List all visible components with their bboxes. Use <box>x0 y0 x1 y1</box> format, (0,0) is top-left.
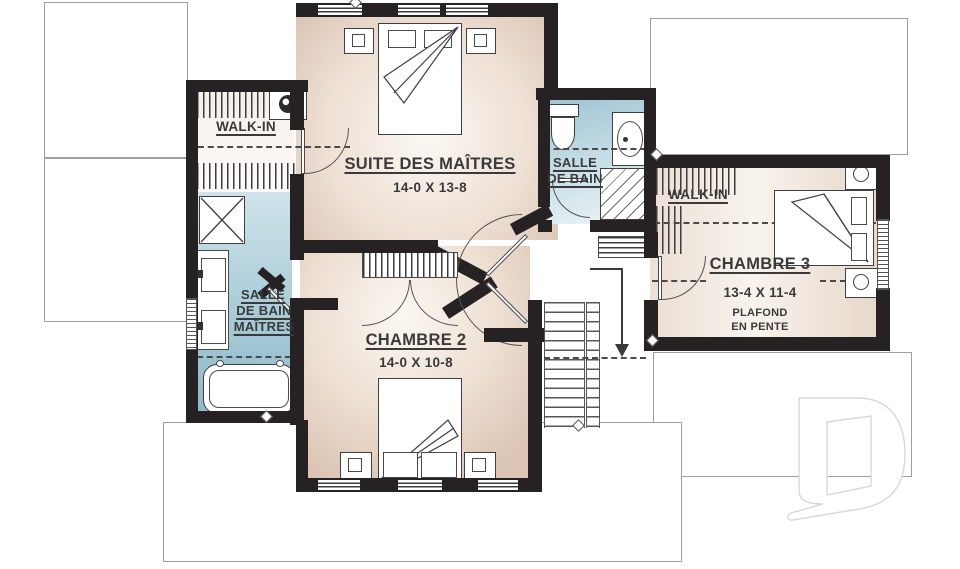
window <box>318 480 360 490</box>
window <box>877 219 889 290</box>
down-arrow-lead <box>590 268 622 270</box>
down-arrow-shaft <box>621 268 623 346</box>
roof-outline-left-bottom <box>44 158 188 322</box>
toilet-tank <box>547 104 579 117</box>
room-label-bathroom-line1: SALLE <box>545 156 605 170</box>
room-note-bedroom3-line2: EN PENTE <box>716 322 804 334</box>
shower-x-lines <box>199 196 245 244</box>
room-dims-master-suite: 14-0 X 13-8 <box>355 181 505 195</box>
room-label-master-walkin: WALK-IN <box>198 120 294 134</box>
sink-icon <box>201 310 226 344</box>
window <box>398 480 442 490</box>
wall <box>536 88 656 100</box>
window <box>446 5 488 15</box>
toilet-icon <box>551 117 575 150</box>
sloped-ceiling-dashed-line <box>544 148 646 150</box>
sloped-ceiling-dashed-line <box>544 357 646 359</box>
pillow <box>383 452 418 478</box>
lamp-icon <box>352 34 365 47</box>
room-dims-bedroom3: 13-4 X 11-4 <box>706 286 814 300</box>
pillow <box>851 233 867 261</box>
wall <box>528 300 542 492</box>
room-dims-bedroom2: 14-0 X 10-8 <box>364 356 468 370</box>
tub-foot <box>216 360 224 367</box>
window <box>186 298 197 350</box>
pillow <box>851 197 867 225</box>
brand-logo-d <box>783 392 913 522</box>
pillow <box>421 452 457 478</box>
wall <box>186 411 304 423</box>
room-label-bedroom3: CHAMBRE 3 <box>700 256 820 273</box>
stair-stringer <box>584 302 587 428</box>
linen-closet-shelves <box>598 236 646 258</box>
roof-outline-top-right <box>650 18 908 155</box>
wall <box>544 3 558 99</box>
wall <box>590 220 656 232</box>
wall <box>186 80 308 92</box>
wall <box>292 298 338 310</box>
stairs <box>544 302 600 428</box>
room-label-bedroom3-walkin: WALK-IN <box>660 188 736 202</box>
closet-shelves <box>362 252 458 278</box>
wall <box>644 337 890 351</box>
room-label-master-bathroom-line3: MAÎTRES <box>228 320 300 334</box>
lamp-icon <box>348 458 362 472</box>
window <box>478 480 518 490</box>
room-label-master-suite: SUITE DES MAÎTRES <box>330 156 530 173</box>
bed-blanket-fold <box>378 23 462 135</box>
sloped-ceiling-dashed-line <box>197 356 291 358</box>
wall <box>644 155 890 168</box>
sink-icon <box>201 258 226 292</box>
lamp-icon <box>472 458 486 472</box>
room-label-bathroom-line2: DE BAIN <box>538 172 612 186</box>
room-label-master-bathroom-line1: SALLE <box>232 288 294 302</box>
room-label-bedroom2: CHAMBRE 2 <box>358 332 474 349</box>
sink-icon <box>617 121 643 157</box>
lamp-icon <box>853 166 869 182</box>
wall <box>644 232 658 258</box>
drain-icon <box>623 137 628 142</box>
down-arrow-icon <box>615 344 629 357</box>
closet-shelves <box>656 206 684 254</box>
lamp-icon <box>474 34 487 47</box>
wall <box>290 240 438 253</box>
bathtub-inner <box>209 370 289 408</box>
wall <box>876 155 890 221</box>
wall <box>186 80 198 423</box>
wall <box>538 95 550 207</box>
closet-shelves <box>197 163 295 189</box>
wall <box>538 220 552 232</box>
window <box>398 5 440 15</box>
lamp-icon <box>853 274 869 290</box>
room-label-master-bathroom-line2: DE BAIN <box>230 304 298 318</box>
tub-foot <box>276 360 284 367</box>
roof-outline-left-top <box>44 2 188 158</box>
room-note-bedroom3-line1: PLAFOND <box>718 308 802 320</box>
